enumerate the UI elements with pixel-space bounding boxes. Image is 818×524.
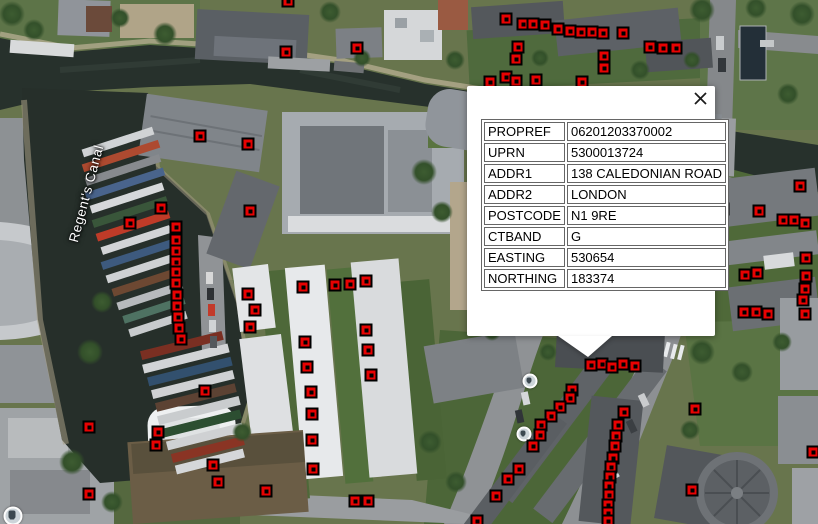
property-marker[interactable] bbox=[360, 275, 373, 288]
field-label: CTBAND bbox=[484, 227, 565, 246]
property-marker[interactable] bbox=[686, 484, 699, 497]
property-marker[interactable] bbox=[207, 459, 220, 472]
property-marker[interactable] bbox=[797, 294, 810, 307]
property-marker[interactable] bbox=[362, 344, 375, 357]
property-marker[interactable] bbox=[362, 495, 375, 508]
property-marker[interactable] bbox=[751, 267, 764, 280]
property-marker[interactable] bbox=[490, 490, 503, 503]
property-marker[interactable] bbox=[260, 485, 273, 498]
property-marker[interactable] bbox=[299, 336, 312, 349]
property-field-row: ADDR2LONDON bbox=[484, 185, 726, 204]
property-marker[interactable] bbox=[618, 406, 631, 419]
field-label: ADDR2 bbox=[484, 185, 565, 204]
property-marker[interactable] bbox=[629, 360, 642, 373]
property-marker[interactable] bbox=[644, 41, 657, 54]
property-marker[interactable] bbox=[800, 252, 813, 265]
property-marker[interactable] bbox=[175, 333, 188, 346]
property-marker[interactable] bbox=[297, 281, 310, 294]
field-label: NORTHING bbox=[484, 269, 565, 288]
property-marker[interactable] bbox=[657, 42, 670, 55]
property-marker[interactable] bbox=[242, 138, 255, 151]
property-marker[interactable] bbox=[500, 13, 513, 26]
property-marker[interactable] bbox=[124, 217, 137, 230]
property-marker[interactable] bbox=[150, 439, 163, 452]
property-marker[interactable] bbox=[360, 324, 373, 337]
property-marker[interactable] bbox=[305, 386, 318, 399]
property-marker[interactable] bbox=[807, 446, 818, 459]
property-marker[interactable] bbox=[344, 278, 357, 291]
property-marker[interactable] bbox=[212, 476, 225, 489]
property-marker[interactable] bbox=[242, 288, 255, 301]
field-value: N1 9RE bbox=[567, 206, 726, 225]
property-marker[interactable] bbox=[329, 279, 342, 292]
property-marker[interactable] bbox=[199, 385, 212, 398]
property-marker[interactable] bbox=[83, 421, 96, 434]
property-marker[interactable] bbox=[306, 434, 319, 447]
field-value: LONDON bbox=[567, 185, 726, 204]
property-marker[interactable] bbox=[249, 304, 262, 317]
info-window: PROPREF06201203370002UPRN5300013724ADDR1… bbox=[467, 86, 715, 336]
property-marker[interactable] bbox=[762, 308, 775, 321]
property-marker[interactable] bbox=[794, 180, 807, 193]
property-field-row: EASTING530654 bbox=[484, 248, 726, 267]
property-field-row: NORTHING183374 bbox=[484, 269, 726, 288]
property-marker[interactable] bbox=[349, 495, 362, 508]
field-label: POSTCODE bbox=[484, 206, 565, 225]
info-window-tail bbox=[558, 336, 612, 357]
property-attributes-table: PROPREF06201203370002UPRN5300013724ADDR1… bbox=[481, 119, 729, 291]
field-value: 06201203370002 bbox=[567, 122, 726, 141]
property-marker[interactable] bbox=[301, 361, 314, 374]
property-marker[interactable] bbox=[753, 205, 766, 218]
field-label: UPRN bbox=[484, 143, 565, 162]
close-icon[interactable] bbox=[692, 90, 709, 107]
property-marker[interactable] bbox=[539, 19, 552, 32]
property-marker[interactable] bbox=[799, 308, 812, 321]
property-marker[interactable] bbox=[689, 403, 702, 416]
property-marker[interactable] bbox=[280, 46, 293, 59]
field-label: EASTING bbox=[484, 248, 565, 267]
property-field-row: PROPREF06201203370002 bbox=[484, 122, 726, 141]
field-value: 530654 bbox=[567, 248, 726, 267]
property-marker[interactable] bbox=[510, 53, 523, 66]
property-marker[interactable] bbox=[602, 515, 615, 524]
property-marker[interactable] bbox=[155, 202, 168, 215]
property-marker[interactable] bbox=[527, 440, 540, 453]
field-label: PROPREF bbox=[484, 122, 565, 141]
property-marker[interactable] bbox=[471, 515, 484, 524]
field-value: G bbox=[567, 227, 726, 246]
property-marker[interactable] bbox=[307, 463, 320, 476]
field-label: ADDR1 bbox=[484, 164, 565, 183]
field-value: 183374 bbox=[567, 269, 726, 288]
property-field-row: UPRN5300013724 bbox=[484, 143, 726, 162]
property-marker[interactable] bbox=[598, 62, 611, 75]
property-marker[interactable] bbox=[170, 221, 183, 234]
field-value: 5300013724 bbox=[567, 143, 726, 162]
property-marker[interactable] bbox=[282, 0, 295, 8]
property-marker[interactable] bbox=[194, 130, 207, 143]
property-marker[interactable] bbox=[365, 369, 378, 382]
property-marker[interactable] bbox=[530, 74, 543, 87]
property-field-row: ADDR1138 CALEDONIAN ROAD bbox=[484, 164, 726, 183]
map-canvas[interactable]: Regent's Canal PROPREF06201203370002UPRN… bbox=[0, 0, 818, 524]
property-marker[interactable] bbox=[83, 488, 96, 501]
property-table-body: PROPREF06201203370002UPRN5300013724ADDR1… bbox=[484, 122, 726, 288]
property-field-row: CTBANDG bbox=[484, 227, 726, 246]
property-marker[interactable] bbox=[799, 217, 812, 230]
property-field-row: POSTCODEN1 9RE bbox=[484, 206, 726, 225]
property-marker[interactable] bbox=[152, 426, 165, 439]
property-marker[interactable] bbox=[800, 270, 813, 283]
property-marker[interactable] bbox=[351, 42, 364, 55]
property-marker[interactable] bbox=[502, 473, 515, 486]
property-marker[interactable] bbox=[306, 408, 319, 421]
property-marker[interactable] bbox=[244, 321, 257, 334]
property-marker[interactable] bbox=[244, 205, 257, 218]
field-value: 138 CALEDONIAN ROAD bbox=[567, 164, 726, 183]
property-marker[interactable] bbox=[597, 27, 610, 40]
property-marker[interactable] bbox=[617, 27, 630, 40]
property-marker[interactable] bbox=[670, 42, 683, 55]
